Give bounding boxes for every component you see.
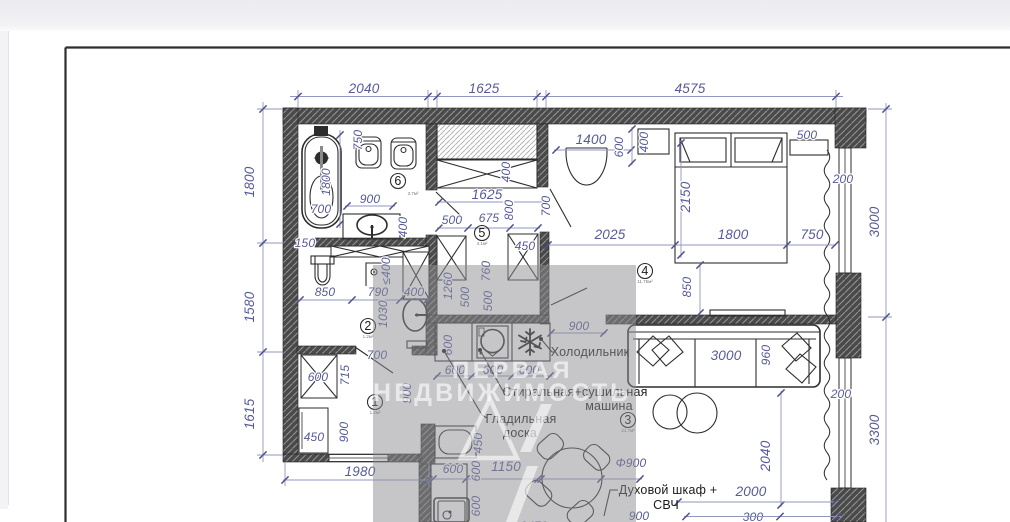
svg-text:1800: 1800 xyxy=(319,168,333,196)
svg-text:1625: 1625 xyxy=(469,81,500,96)
svg-text:750: 750 xyxy=(351,130,365,151)
svg-text:900: 900 xyxy=(337,422,351,443)
svg-text:4.1м²: 4.1м² xyxy=(477,241,488,246)
svg-text:2040: 2040 xyxy=(758,440,773,472)
svg-text:2150: 2150 xyxy=(678,181,693,213)
svg-text:1625: 1625 xyxy=(472,187,503,202)
svg-text:1615: 1615 xyxy=(242,398,257,429)
svg-text:4: 4 xyxy=(641,264,648,278)
svg-text:200: 200 xyxy=(830,387,852,401)
svg-text:600: 600 xyxy=(308,370,329,384)
svg-text:715: 715 xyxy=(338,365,352,386)
svg-text:400: 400 xyxy=(396,217,410,238)
svg-text:800: 800 xyxy=(502,200,516,221)
svg-text:450: 450 xyxy=(304,430,325,444)
svg-text:2025: 2025 xyxy=(594,227,626,242)
svg-text:4575: 4575 xyxy=(675,81,706,96)
svg-text:3300: 3300 xyxy=(867,414,882,445)
svg-text:700: 700 xyxy=(539,196,553,217)
svg-text:1580: 1580 xyxy=(242,291,257,322)
svg-text:11.75м²: 11.75м² xyxy=(637,279,653,284)
svg-text:1980: 1980 xyxy=(345,464,376,479)
svg-text:400: 400 xyxy=(499,162,513,183)
svg-text:2000: 2000 xyxy=(735,484,767,499)
svg-text:960: 960 xyxy=(759,345,773,366)
svg-text:750: 750 xyxy=(800,227,823,242)
svg-text:5: 5 xyxy=(478,226,485,240)
svg-text:3000: 3000 xyxy=(711,348,742,363)
svg-text:2: 2 xyxy=(364,319,371,333)
svg-text:3000: 3000 xyxy=(867,206,882,237)
svg-text:600: 600 xyxy=(612,137,626,158)
svg-text:400: 400 xyxy=(637,132,651,153)
svg-text:НЕДВИЖИМОСТЬ: НЕДВИЖИМОСТЬ xyxy=(373,379,631,407)
svg-text:500: 500 xyxy=(442,213,463,227)
svg-text:2040: 2040 xyxy=(348,81,380,96)
svg-text:1.2м²: 1.2м² xyxy=(363,334,374,339)
svg-text:1800: 1800 xyxy=(718,227,749,242)
svg-text:1400: 1400 xyxy=(576,132,607,147)
svg-text:6: 6 xyxy=(394,174,401,188)
svg-text:850: 850 xyxy=(680,277,694,298)
svg-text:850: 850 xyxy=(315,285,336,299)
svg-text:300: 300 xyxy=(743,510,764,522)
svg-text:700: 700 xyxy=(311,202,332,216)
svg-text:1800: 1800 xyxy=(242,166,257,197)
svg-text:3.7м²: 3.7м² xyxy=(408,191,419,196)
svg-text:200: 200 xyxy=(832,172,854,186)
svg-text:СВЧ: СВЧ xyxy=(653,498,679,512)
svg-text:675: 675 xyxy=(479,211,500,225)
svg-text:500: 500 xyxy=(797,128,818,142)
svg-text:150: 150 xyxy=(295,236,316,250)
svg-text:900: 900 xyxy=(360,192,381,206)
svg-text:450: 450 xyxy=(515,239,536,253)
